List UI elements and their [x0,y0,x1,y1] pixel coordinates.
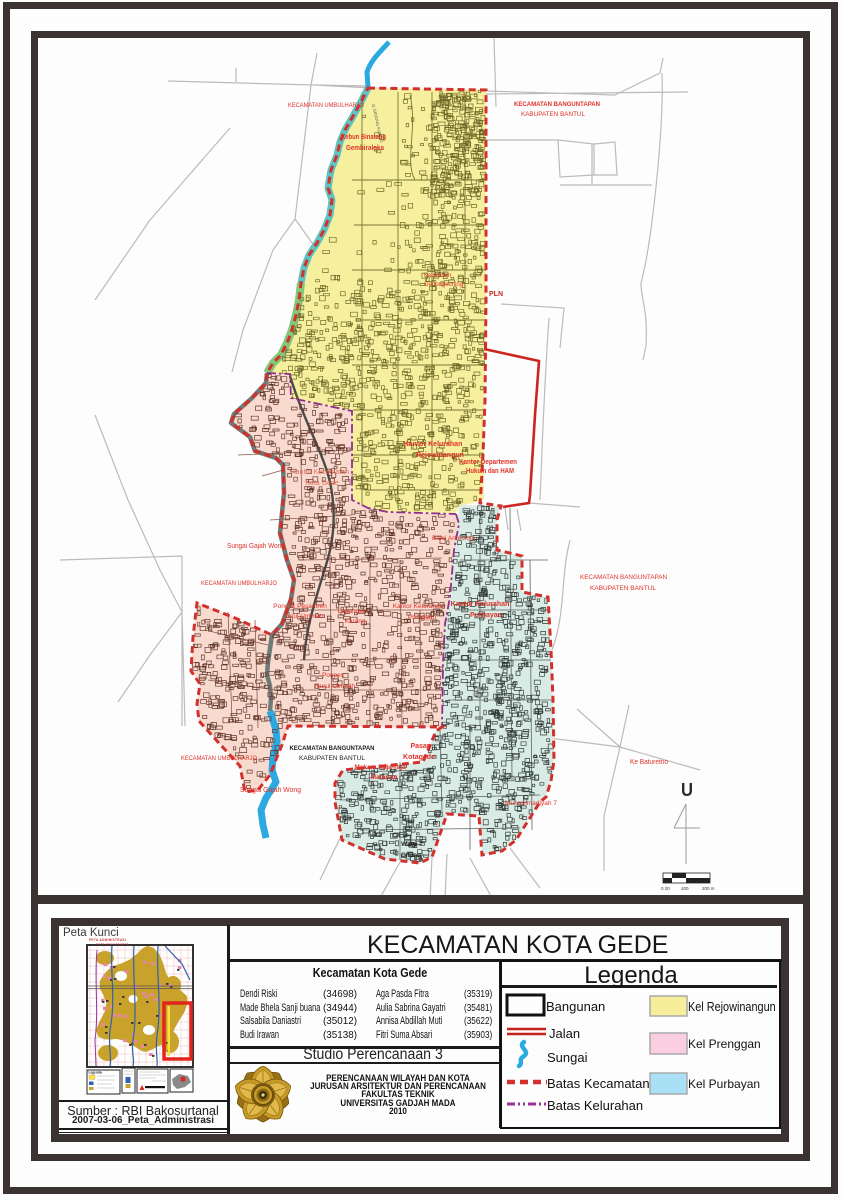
svg-text:KOTA YOGYAKARTA: KOTA YOGYAKARTA [96,942,129,946]
svg-text:Legenda: Legenda [89,1071,102,1075]
